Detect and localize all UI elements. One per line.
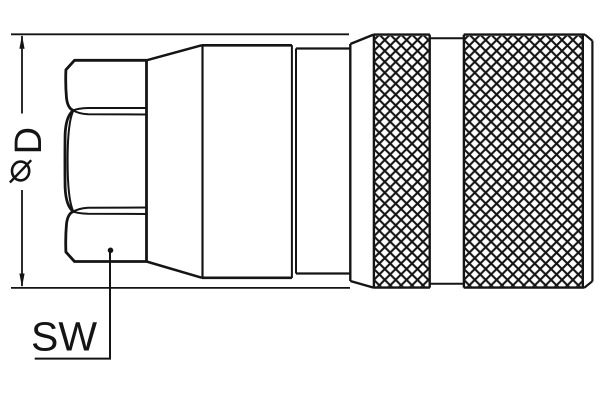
svg-text:D: D — [8, 127, 50, 154]
svg-text:SW: SW — [31, 313, 97, 359]
